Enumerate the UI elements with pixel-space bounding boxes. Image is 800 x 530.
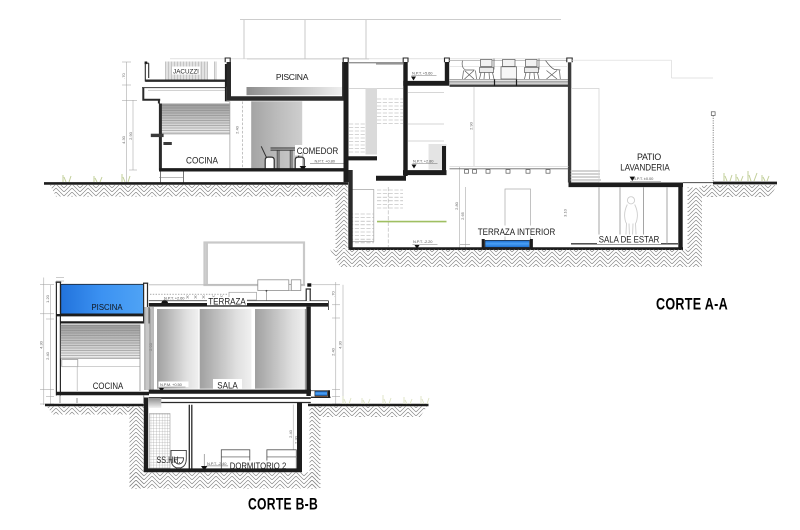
svg-text:.70: .70 [330,290,335,296]
svg-text:JACUZZI: JACUZZI [173,69,199,76]
svg-text:SALA: SALA [217,379,238,390]
svg-text:CORTE A-A: CORTE A-A [656,296,728,314]
svg-text:2.40: 2.40 [235,125,240,134]
svg-text:SS.HH.: SS.HH. [157,455,181,465]
svg-text:N.P.T. +0.80: N.P.T. +0.80 [315,158,336,163]
svg-text:.70: .70 [121,72,126,78]
svg-text:PATIO: PATIO [637,152,661,162]
svg-text:CORTE B-B: CORTE B-B [248,496,318,514]
svg-text:PISCINA: PISCINA [92,302,123,312]
svg-text:N.P.T. +2.60: N.P.T. +2.60 [164,296,185,301]
svg-text:N.P.T. ±0.00: N.P.T. ±0.00 [633,176,654,181]
svg-text:4.30: 4.30 [39,340,44,349]
svg-text:LAVANDERIA: LAVANDERIA [620,163,670,173]
svg-text:4.30: 4.30 [121,135,126,144]
svg-text:4.30: 4.30 [338,340,343,349]
svg-text:2.90: 2.90 [469,121,474,130]
svg-text:N.P.T. +5.60: N.P.T. +5.60 [412,71,433,76]
svg-text:3.10: 3.10 [563,208,568,217]
svg-text:2.90: 2.90 [128,131,133,140]
svg-text:2.65: 2.65 [460,211,465,220]
svg-text:2.90: 2.90 [148,342,153,351]
svg-text:COCINA: COCINA [186,156,218,166]
svg-text:2.40: 2.40 [330,347,335,356]
svg-text:PISCINA: PISCINA [276,72,309,82]
svg-text:2.40: 2.40 [288,429,293,438]
svg-text:2.80: 2.80 [454,201,459,210]
svg-text:2.40: 2.40 [45,351,50,360]
svg-text:N.P.M. +0.50: N.P.M. +0.50 [160,382,183,387]
svg-text:1.20: 1.20 [45,294,50,303]
svg-text:N.P.T. -2.40: N.P.T. -2.40 [207,461,227,466]
svg-text:TERRAZA: TERRAZA [208,297,246,307]
svg-text:COCINA: COCINA [93,381,124,391]
svg-text:N.P.T. -2.20: N.P.T. -2.20 [413,239,433,244]
svg-text:SALA DE ESTAR: SALA DE ESTAR [599,235,660,245]
svg-text:TERRAZA INTERIOR: TERRAZA INTERIOR [478,227,556,237]
svg-text:N.P.T. +2.80: N.P.T. +2.80 [413,158,434,163]
